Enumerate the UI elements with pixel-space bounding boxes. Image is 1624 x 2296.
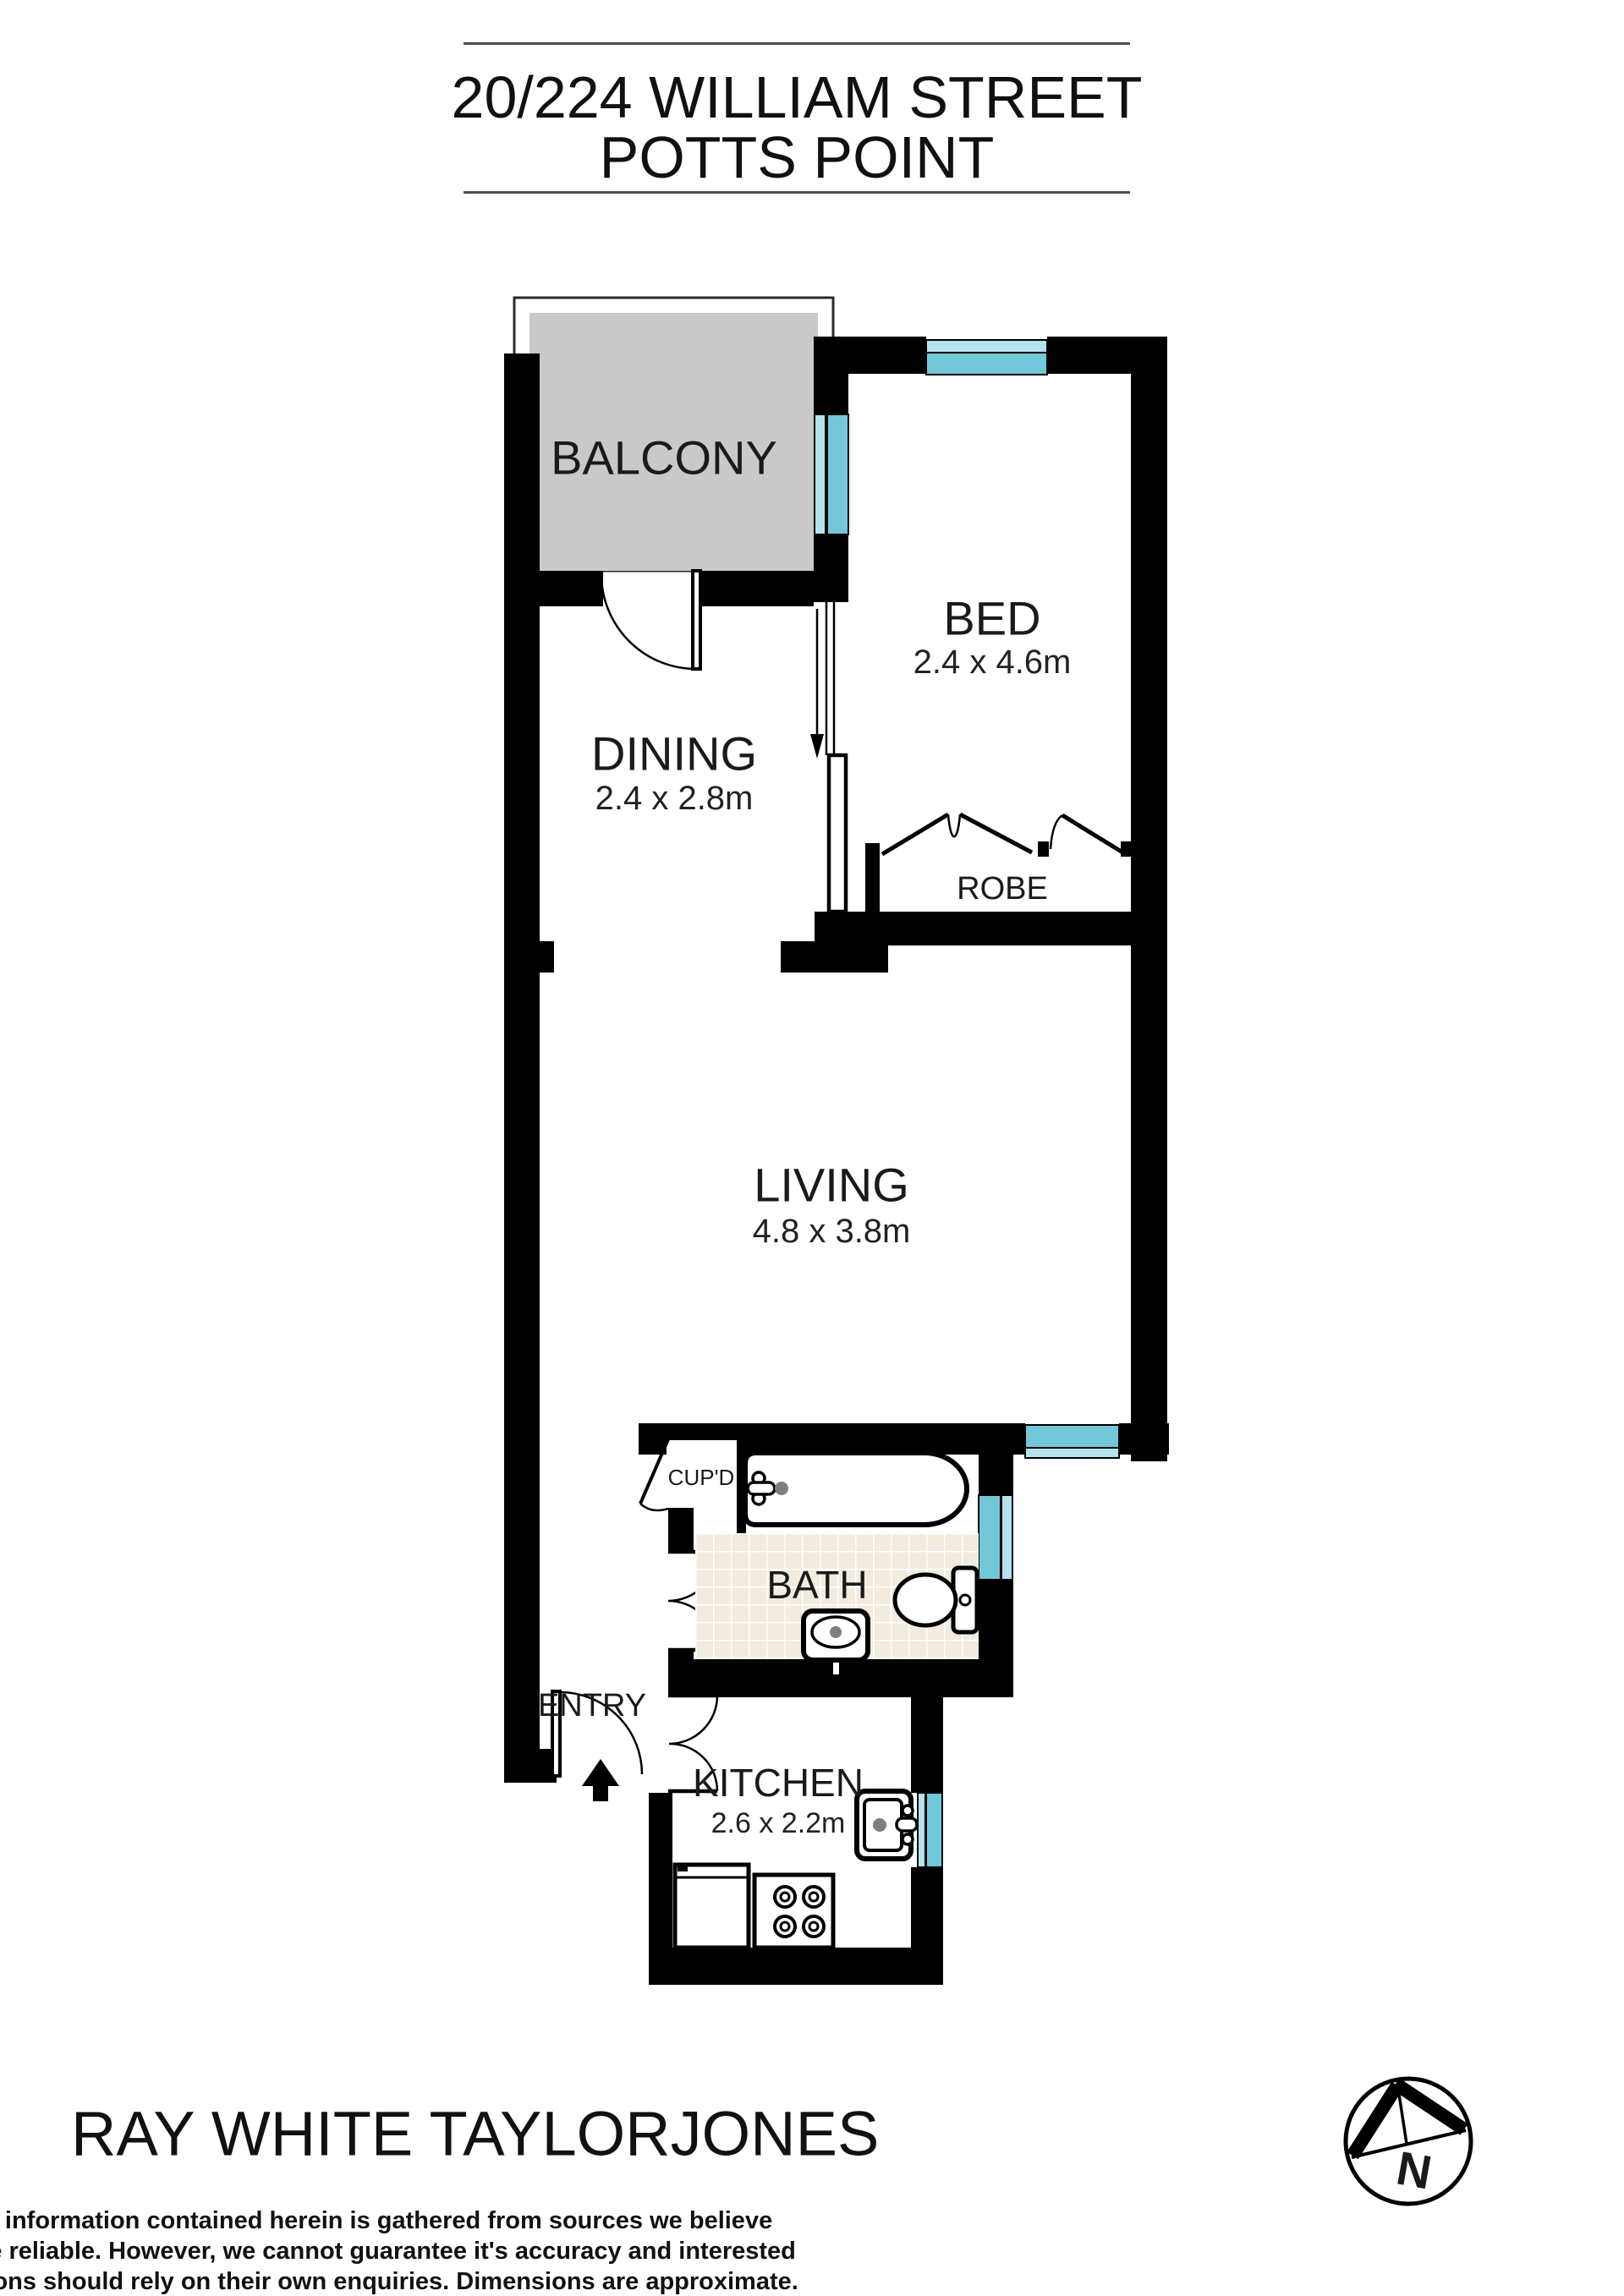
bathtub bbox=[745, 1453, 967, 1525]
kitchen-bench bbox=[675, 1865, 749, 1948]
footer: RAY WHITE TAYLORJONES All information co… bbox=[0, 2099, 879, 2296]
north-compass: N bbox=[1346, 2079, 1471, 2204]
dining-label: DINING bbox=[591, 727, 757, 781]
disclaimer-line1: All information contained herein is gath… bbox=[0, 2207, 772, 2234]
disclaimer: All information contained herein is gath… bbox=[0, 2207, 798, 2295]
entry-label: ENTRY bbox=[538, 1688, 646, 1723]
disclaimer-line2: to be reliable. However, we cannot guara… bbox=[0, 2238, 796, 2265]
robe-bifold-doors bbox=[882, 814, 1124, 854]
kitchen-sink bbox=[857, 1791, 917, 1859]
slide-direction-arrow bbox=[810, 734, 824, 759]
sliding-door bbox=[810, 602, 846, 912]
dining-dimensions: 2.4 x 2.8m bbox=[595, 780, 754, 817]
bed-dimensions: 2.4 x 4.6m bbox=[913, 644, 1072, 681]
kitchen-dimensions: 2.6 x 2.2m bbox=[711, 1807, 846, 1839]
title-rule-bottom bbox=[464, 191, 1130, 194]
entry-arrow bbox=[582, 1759, 619, 1801]
cupboard-label: CUP'D bbox=[668, 1465, 735, 1490]
stove bbox=[754, 1875, 833, 1948]
window-kitchen bbox=[918, 1793, 942, 1867]
window-living bbox=[1025, 1425, 1119, 1458]
floorplan-page: 20/224 WILLIAM STREET POTTS POINT bbox=[0, 0, 1624, 2296]
living-label: LIVING bbox=[754, 1159, 909, 1212]
living-dimensions: 4.8 x 3.8m bbox=[753, 1213, 911, 1250]
toilet bbox=[895, 1568, 977, 1632]
disclaimer-line3: persons should rely on their own enquiri… bbox=[0, 2268, 798, 2295]
title-line1: 20/224 WILLIAM STREET bbox=[452, 64, 1143, 130]
floorplan-svg: 20/224 WILLIAM STREET POTTS POINT bbox=[0, 0, 1624, 2296]
title-block: 20/224 WILLIAM STREET POTTS POINT bbox=[452, 42, 1143, 194]
balcony-label: BALCONY bbox=[551, 431, 777, 485]
robe-label: ROBE bbox=[957, 871, 1048, 907]
bed-label: BED bbox=[943, 592, 1040, 645]
title-line2: POTTS POINT bbox=[600, 124, 995, 190]
title-rule-top bbox=[464, 42, 1130, 45]
balcony-door bbox=[601, 571, 700, 669]
kitchen-label: KITCHEN bbox=[693, 1761, 864, 1805]
window-balcony-side bbox=[815, 414, 848, 534]
window-bath bbox=[979, 1495, 1012, 1580]
agency-name: RAY WHITE TAYLORJONES bbox=[71, 2099, 879, 2169]
bath-label: BATH bbox=[766, 1563, 867, 1607]
window-bed bbox=[926, 340, 1047, 375]
north-label: N bbox=[1393, 2140, 1436, 2199]
